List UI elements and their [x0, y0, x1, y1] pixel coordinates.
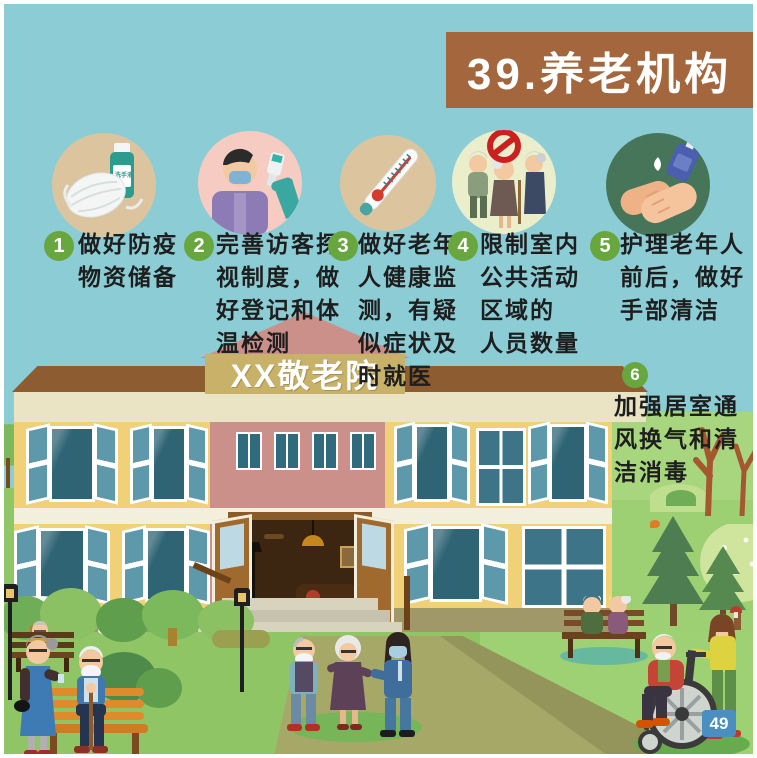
step-railing-right [404, 576, 410, 630]
ceiling-lamp-icon [264, 534, 284, 539]
thermometer-icon [340, 135, 436, 231]
standing-elderly-woman [12, 634, 64, 758]
sitting-elderly-man [62, 646, 120, 758]
infographic-page: XX敬老院 [0, 0, 757, 758]
window-open [404, 526, 508, 602]
page-number: 49 [710, 714, 729, 734]
lamp-post-pole [240, 606, 244, 692]
step4-number: 4 [448, 231, 478, 261]
step5-text: 护理老年人 前后，做好 手部清洁 [620, 228, 745, 327]
step1-number: 1 [44, 231, 74, 261]
step2-number: 2 [184, 231, 214, 261]
title-banner: 39.养老机构 [446, 32, 753, 108]
window-small [312, 432, 338, 470]
step2-text: 完善访客探 视制度，做 好登记和体 温检测 [216, 228, 341, 360]
lamp-post-icon [234, 588, 250, 606]
step3-number: 3 [328, 231, 358, 261]
window-closed [476, 428, 526, 506]
elderly-couple-and-nurse [268, 628, 436, 742]
step4-icon-circle [452, 130, 556, 234]
step6-number: 6 [622, 362, 648, 388]
hanging-lamp-icon [302, 535, 324, 546]
caregiver-wheelchair-group [626, 608, 757, 758]
step2-icon-circle [198, 131, 302, 235]
bird-icon [650, 520, 660, 528]
window-open [394, 424, 470, 502]
window-small [274, 432, 300, 470]
step1-text: 做好防疫 物资储备 [78, 228, 178, 294]
window-small [350, 432, 376, 470]
step5-icon-circle [606, 133, 710, 237]
step4-text: 限制室内 公共活动 区域的 人员数量 [480, 228, 580, 360]
mask-and-sanitizer-icon: 洗手液 [52, 133, 156, 237]
step6-text: 加强居室通 风换气和清 洁消毒 [614, 390, 739, 489]
window-open [26, 426, 118, 502]
window-open [528, 424, 608, 502]
hanging-lamp-cord [312, 520, 314, 536]
tree-left-trunk [6, 458, 10, 490]
visitor-temperature-check-icon [198, 131, 302, 235]
no-gathering-icon [452, 130, 556, 234]
step3-icon-circle [340, 135, 436, 231]
window-open [130, 426, 208, 502]
page-title: 39.养老机构 [467, 38, 732, 102]
step1-icon-circle: 洗手液 [52, 133, 156, 237]
page-number-badge: 49 [702, 710, 736, 737]
hand-hygiene-icon [606, 133, 710, 237]
window-small [236, 432, 262, 470]
step5-number: 5 [590, 231, 620, 261]
lamp-post-icon [2, 584, 18, 602]
step3-text: 做好老年 人健康监 测，有疑 似症状及 时就医 [358, 228, 458, 393]
